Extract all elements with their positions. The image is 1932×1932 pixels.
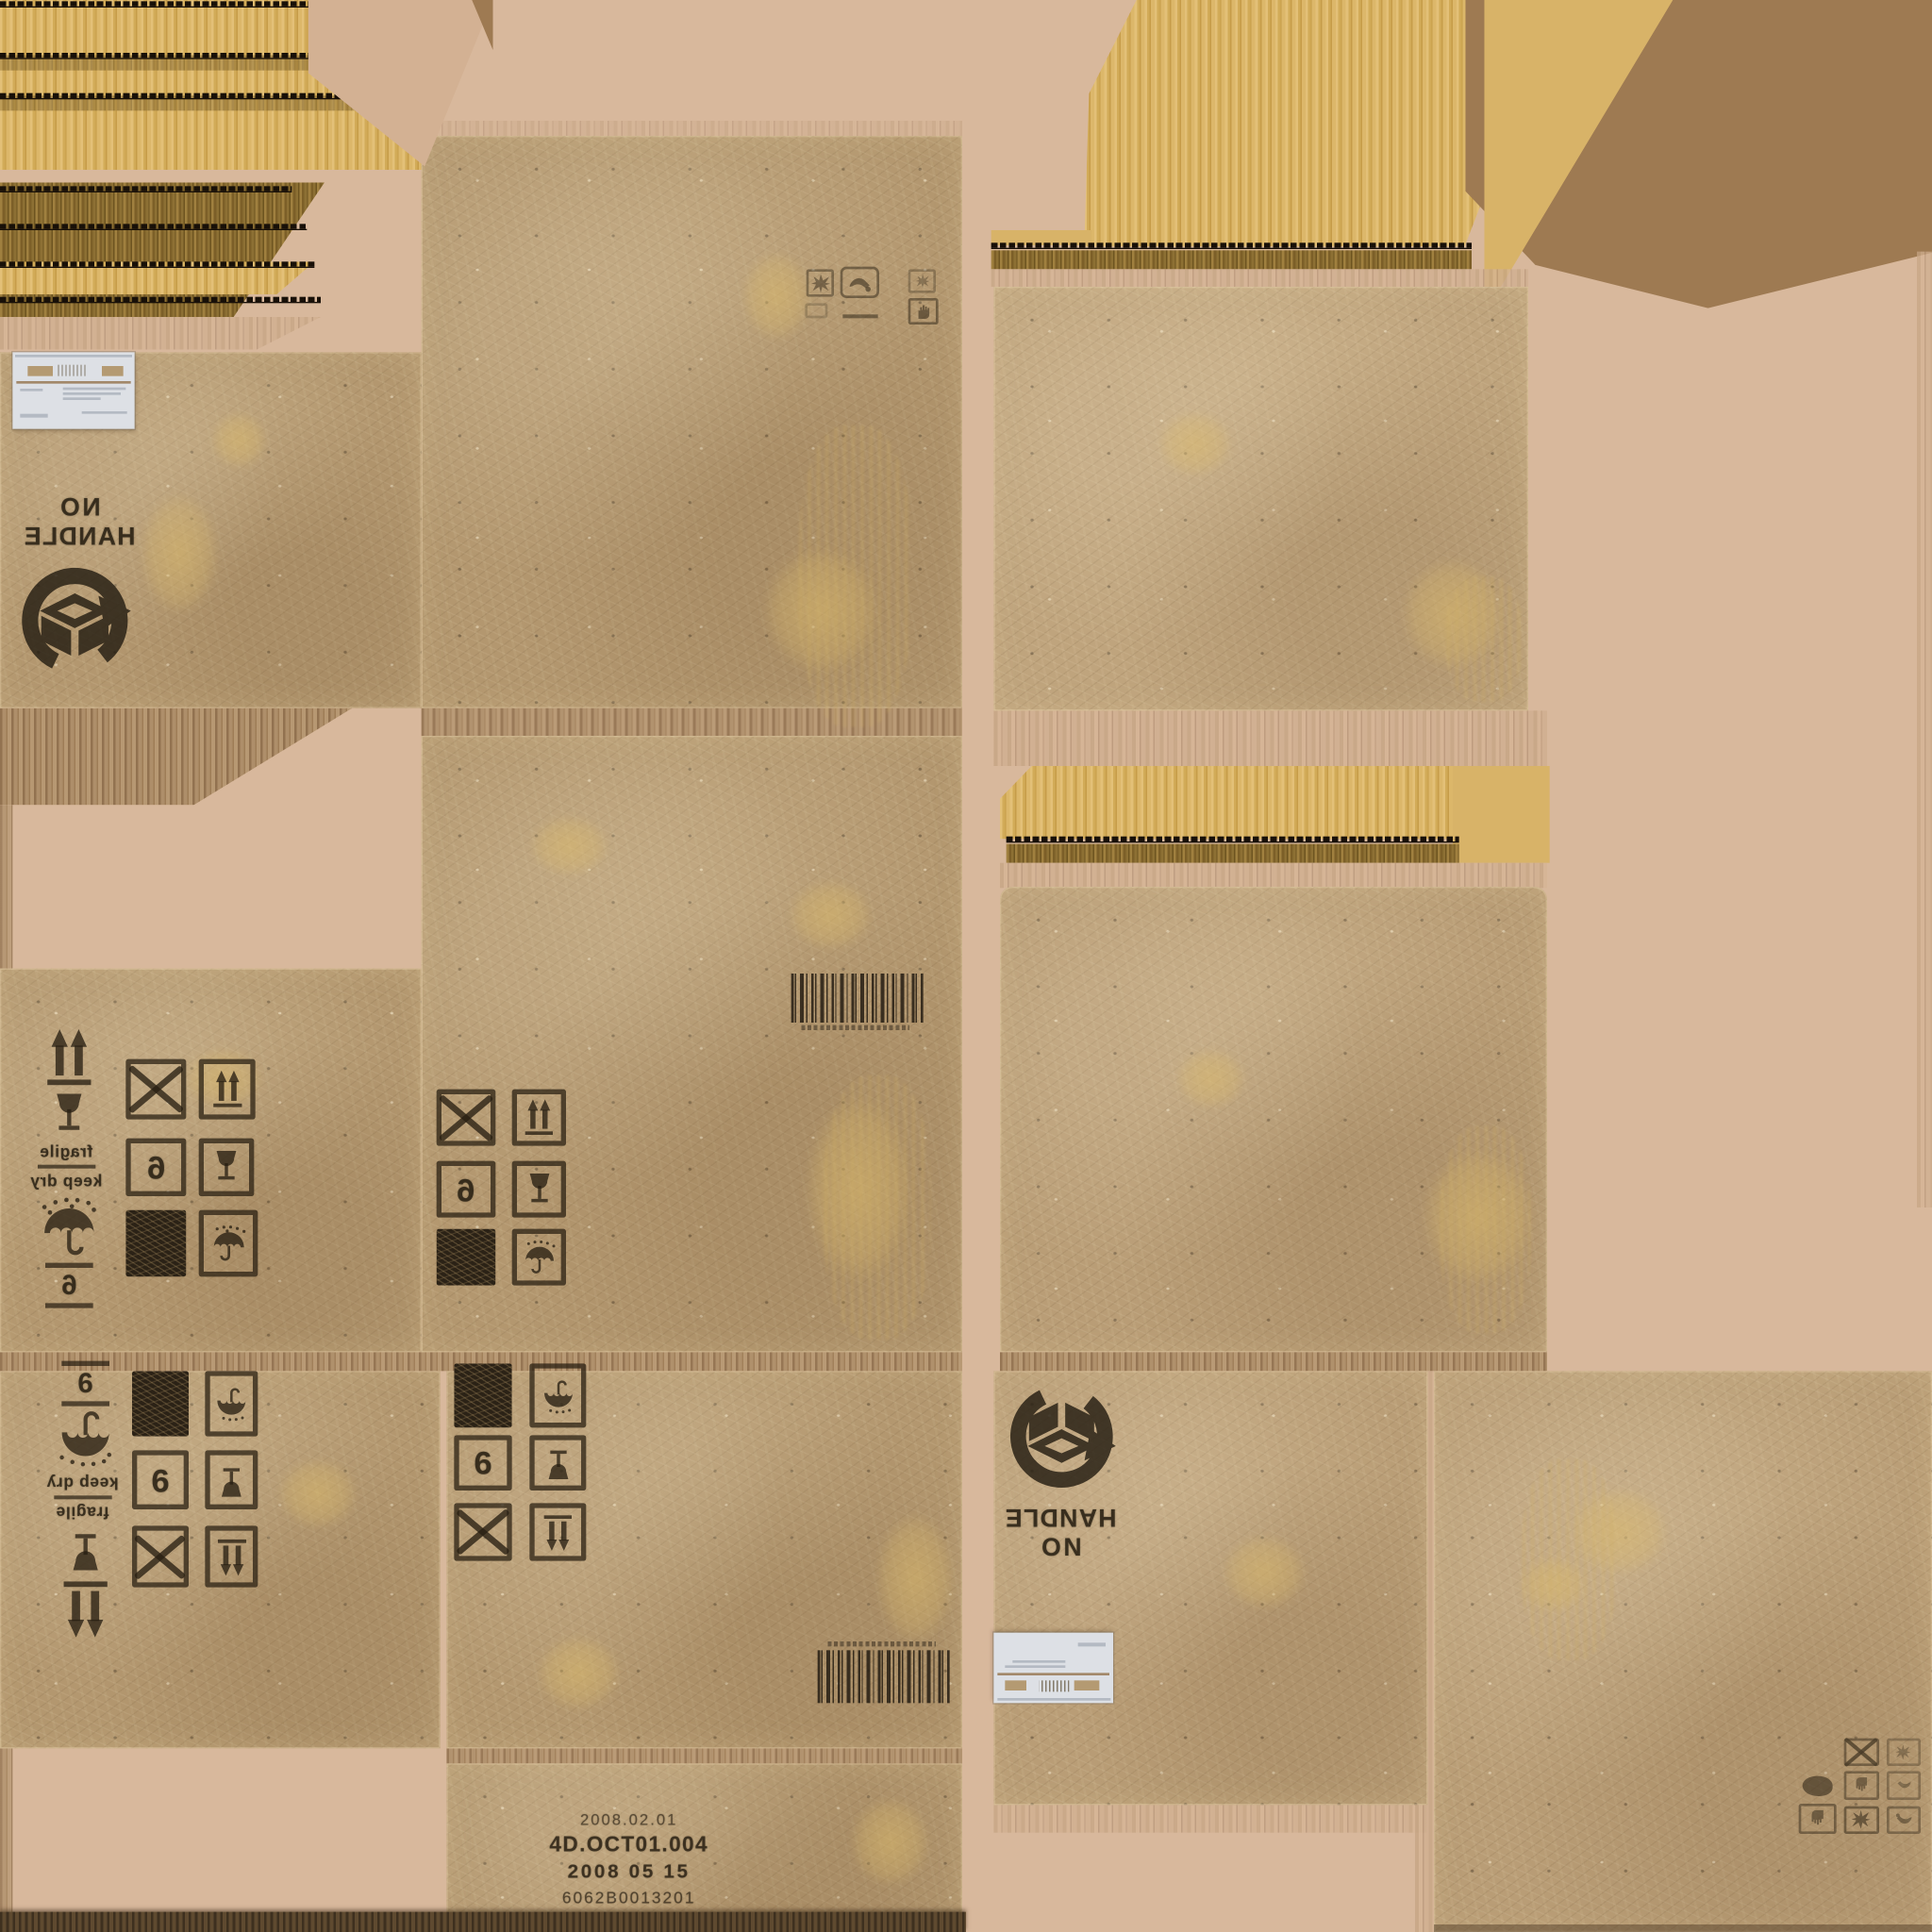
panel-bottom-center: 6 [446,1371,962,1748]
keep-dry-umbrella-icon [205,1371,258,1436]
no-handle-line2: HANDLE [991,1502,1130,1531]
do-not-clamp-icon [125,1059,186,1120]
stack-limit-box: 6 [125,1139,186,1196]
stack-limit-box: 6 [454,1435,511,1491]
keep-dry-umbrella-icon [199,1210,258,1277]
production-code: 4D.OCT01.004 [491,1833,767,1858]
hand-icon [908,298,939,325]
label-patch [27,366,53,376]
keep-dry-umbrella-icon [529,1363,586,1427]
flute-edge-line [0,224,307,230]
fragile-glass-icon [64,1527,107,1573]
barcode [818,1650,950,1703]
care-marks-column: fragile keep dry 6 [7,1022,126,1311]
panel-bottom-right: NO HANDLE [993,1371,1427,1805]
panel-top-middle [422,136,962,708]
flute-edge-line [1007,837,1459,843]
production-date-2: 2008 05 15 [491,1861,767,1884]
fragile-text: fragile [23,1503,142,1522]
care-marks-column: fragile keep dry 6 [23,1356,142,1645]
fragile-glass-icon [48,1091,91,1137]
stretch-fringe [991,269,1528,287]
label-patch [1005,1680,1026,1690]
barcode [791,974,924,1023]
panel-top-right [993,287,1528,710]
stretch-fringe [0,805,12,968]
care-rule [38,1165,95,1169]
this-way-up-icon [38,1025,101,1091]
clamp-icon [1887,1807,1921,1834]
stretch-fringe [0,1748,12,1932]
production-stamp: 2008.02.01 4D.OCT01.004 2008 05 15 6062B… [491,1811,767,1907]
panel-middle-right [1000,887,1547,1352]
panel-middle-center: 6 [422,736,962,1352]
hand-box-icon [1844,1771,1879,1800]
do-not-clamp-icon [1844,1739,1879,1766]
panel-bottom-left: fragile keep dry 6 6 [0,1371,441,1748]
stretch-fringe [0,317,321,350]
faded-symbol-icon [908,269,936,292]
production-serial: 6062B0013201 [491,1888,767,1907]
this-way-down-icon [205,1525,258,1587]
stamp-blob [1803,1776,1833,1796]
panel-middle-left: fragile keep dry 6 6 [0,969,422,1353]
keep-dry-umbrella-icon [512,1229,566,1286]
recycle-box-stamp-icon [1004,1378,1120,1494]
this-way-up-icon [54,1576,117,1641]
stack-digit: 6 [61,1361,109,1407]
flute-shadow-band [1007,844,1459,863]
stack-digit: 6 [45,1263,93,1308]
do-not-clamp-icon [132,1525,189,1587]
label-barcode-icon [1039,1680,1069,1691]
bottom-edge-strip [1434,1924,1932,1932]
gold-flat-mid-right [1453,766,1550,863]
label-patch [1074,1680,1100,1690]
faded-symbol-icon [1887,1771,1921,1800]
barcode-digits [827,1641,936,1646]
starburst-icon [807,269,834,296]
production-date-1: 2008.02.01 [491,1811,767,1829]
solid-square-icon [125,1210,186,1277]
clamp-icon [841,267,879,298]
recycle-box-stamp-icon [15,561,135,681]
stretch-fringe [1000,863,1547,889]
bottom-edge-strip [0,1912,966,1932]
fragile-glass-icon [512,1161,566,1218]
panel-bottom-center-lower: 2008.02.01 4D.OCT01.004 2008 05 15 6062B… [446,1763,962,1932]
keep-dry-text: keep dry [7,1171,126,1190]
label-patch [102,366,124,376]
stretch-fringe [434,121,962,136]
label-barcode-icon [58,365,88,376]
no-handle-line1: NO [8,494,149,524]
this-way-up-icon [199,1059,256,1120]
corrugated-strip-mid-right [1000,766,1453,839]
hand-icon [1799,1804,1837,1834]
stretch-fringe [1917,252,1932,1207]
stamp-underline [842,314,877,318]
do-not-clamp-icon [454,1503,511,1560]
fragile-glass-icon [529,1435,586,1491]
faded-symbol-icon [1887,1739,1921,1766]
no-handle-line2: HANDLE [8,524,149,553]
panel-top-left: NO HANDLE [0,352,422,708]
stretch-fringe [0,708,352,806]
no-handle-line1: NO [991,1531,1130,1560]
flute-edge-line [0,261,314,268]
starburst-icon [1844,1807,1879,1834]
keep-dry-umbrella-icon [33,1197,106,1257]
stretch-fringe [446,1748,962,1763]
shipping-label [993,1633,1113,1704]
shipping-label [12,352,134,428]
stretch-fringe [993,1805,1427,1832]
no-handle-stamp: NO HANDLE [991,1502,1130,1559]
care-rule [54,1495,111,1499]
flute-edge-line [0,297,321,304]
cardboard-texture-atlas: NO HANDLE fr [0,0,1932,1932]
stack-limit-box: 6 [132,1450,189,1509]
keep-dry-text: keep dry [23,1474,142,1493]
no-handle-stamp-group: NO HANDLE [991,1371,1130,1559]
flute-edge-line [991,242,1472,249]
do-not-clamp-icon [437,1090,496,1146]
keep-dry-umbrella-icon [49,1408,122,1466]
fragile-glass-icon [199,1139,255,1196]
stretch-fringe [1000,1352,1547,1371]
no-handle-stamp: NO HANDLE [8,494,149,552]
panel-bottom-far-right [1434,1371,1932,1932]
stack-limit-box: 6 [437,1161,496,1218]
faded-symbol-icon [805,303,827,318]
solid-square-icon [437,1229,496,1286]
this-way-down-icon [529,1503,586,1560]
solid-square-icon [132,1371,189,1436]
fragile-text: fragile [7,1142,126,1161]
stretch-fringe [993,710,1547,766]
barcode-digits [801,1025,909,1030]
solid-square-icon [454,1363,511,1427]
this-way-up-icon [512,1090,566,1146]
fragile-glass-icon [205,1450,258,1509]
mini-symbol-grid [1795,1739,1921,1834]
flute-shadow-band [991,250,1472,269]
flute-edge-line [0,186,291,192]
